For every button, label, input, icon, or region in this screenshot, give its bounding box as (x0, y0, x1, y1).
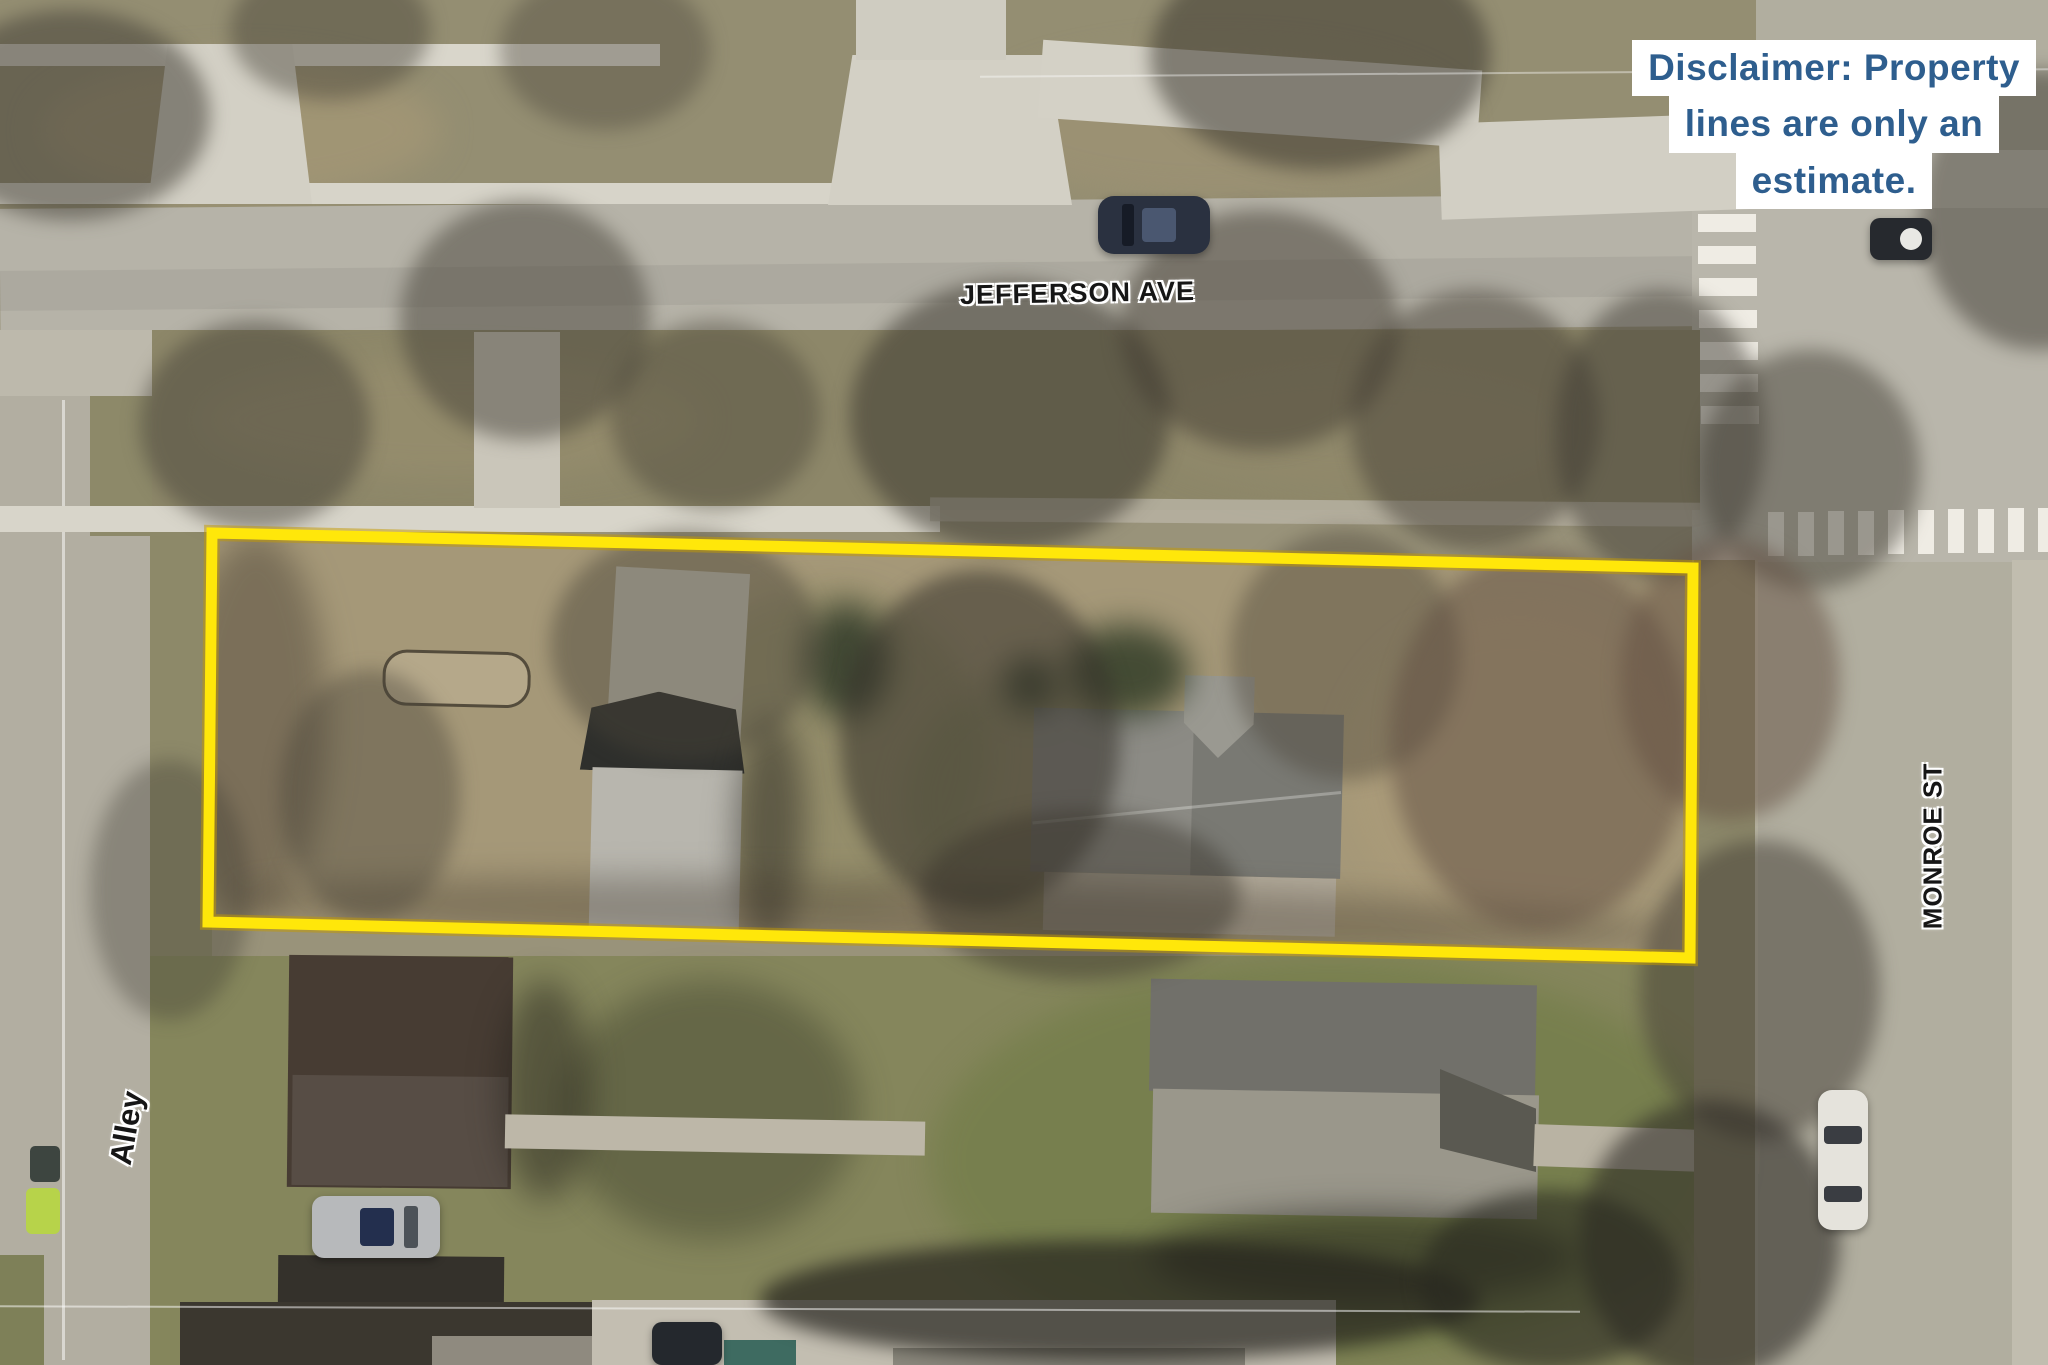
property-boundary-glow (208, 533, 1693, 958)
disclaimer-line-3: estimate. (1736, 153, 1933, 209)
property-boundary (208, 533, 1693, 958)
disclaimer: Disclaimer: Property lines are only an e… (1632, 40, 2036, 209)
disclaimer-line-2: lines are only an (1669, 96, 1999, 152)
street-label-monroe: MONROE ST (1918, 763, 1949, 929)
street-label-jefferson: JEFFERSON AVE (960, 276, 1196, 311)
disclaimer-line-1: Disclaimer: Property (1632, 40, 2036, 96)
aerial-map: JEFFERSON AVE MONROE ST Alley Disclaimer… (0, 0, 2048, 1365)
